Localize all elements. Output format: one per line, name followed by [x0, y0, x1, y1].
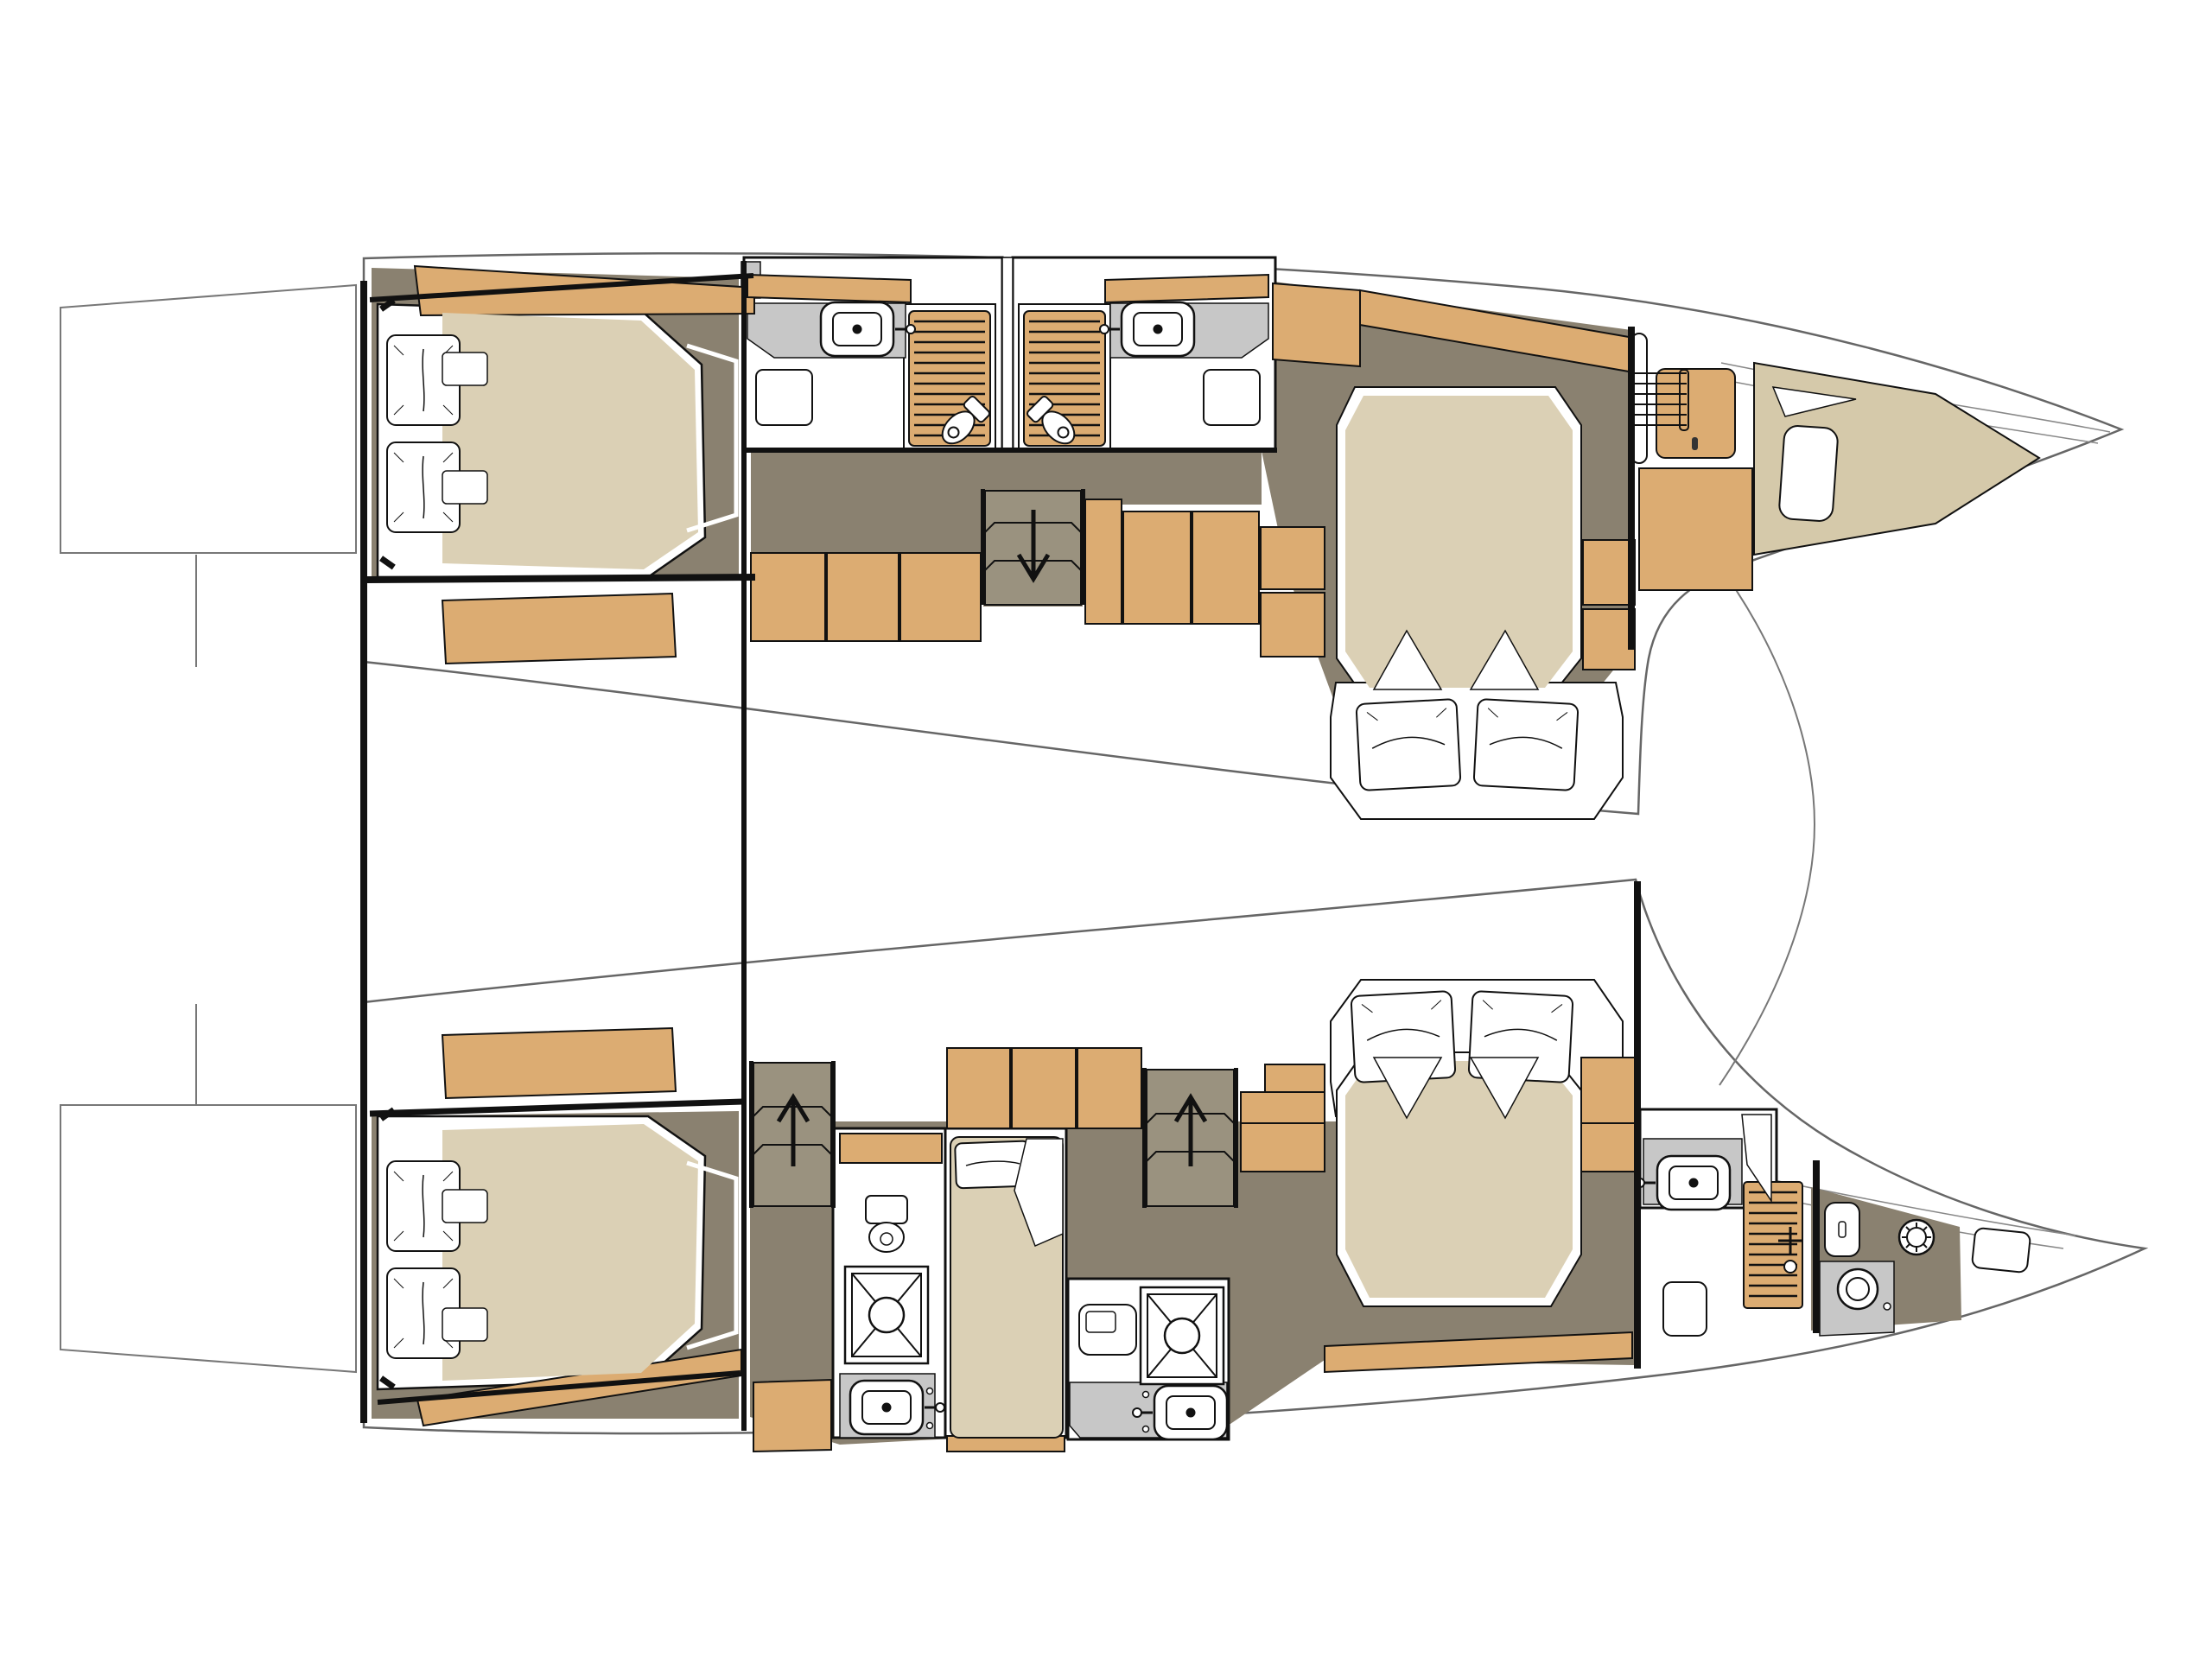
starboard-head-aft-shelf — [840, 1134, 942, 1163]
port-forepeak-seat-slot — [1692, 437, 1698, 450]
catamaran-floor-plan — [0, 0, 2212, 1658]
corridor-cabinet-3 — [900, 553, 981, 641]
swim-platforms — [60, 285, 356, 1372]
pillow-icon — [1356, 699, 1460, 791]
port-forward-bulkhead — [1628, 327, 1635, 650]
port-side-sunpad — [442, 594, 676, 664]
port-transom-platform — [60, 285, 356, 553]
port-forward-cabin-wall-unit — [1273, 283, 1360, 366]
plumbing-fitting — [1143, 1392, 1149, 1398]
deck-hatch-icon — [1778, 425, 1838, 522]
port-stair-wall — [981, 489, 985, 605]
plumbing-fitting — [1143, 1426, 1149, 1432]
windlass-cog-icon — [1899, 1220, 1934, 1255]
starboard-stair-wall — [1142, 1068, 1147, 1208]
corridor-cabinet-2 — [827, 553, 899, 641]
starboard-aft-bed-shelf-notch — [442, 1308, 487, 1341]
corridor-cabinet-1 — [751, 553, 825, 641]
starboard-forward-bed-mattress — [1345, 1061, 1573, 1298]
bow-seat — [1663, 1282, 1707, 1336]
port-heads-divider-wall — [1002, 257, 1013, 451]
shower-tray-icon — [1141, 1287, 1224, 1384]
pillow-icon — [1473, 699, 1578, 791]
sink-icon — [850, 1381, 923, 1434]
starboard-transom-platform — [60, 1105, 356, 1372]
corridor-cabinet-6 — [1192, 511, 1259, 624]
starboard-aft-bed-shelf-notch — [442, 1190, 487, 1223]
port-aft-head-seat — [756, 370, 812, 425]
toilet-bowl-ring-icon — [1838, 1269, 1878, 1309]
port-aft-bed-shelf-notch — [442, 353, 487, 385]
starboard-aft-bed-mattress — [442, 1124, 698, 1381]
bulkhead-mid — [741, 261, 747, 1431]
starboard-side-sunpad — [442, 1028, 676, 1098]
toilet-icon — [866, 1196, 907, 1252]
sink-icon — [1657, 1156, 1730, 1210]
port-forepeak-locker — [1639, 468, 1752, 590]
plumbing-fitting — [927, 1388, 933, 1394]
port-aft-cabin-bottom-rail — [367, 577, 755, 580]
sink-icon — [1122, 302, 1194, 356]
starboard-corridor-cabinet-1 — [947, 1048, 1010, 1128]
port-stair-wall — [1081, 489, 1085, 605]
starboard-forward-cabin-wardrobe-right — [1581, 1058, 1635, 1172]
port-aft-head-shelf — [747, 275, 911, 302]
port-forward-head-seat — [1204, 370, 1260, 425]
corridor-cabinet-4 — [1085, 499, 1122, 624]
port-aft-bed-shelf-notch — [442, 471, 487, 504]
starboard-forward-bulkhead — [1634, 881, 1641, 1369]
port-forward-bed-mattress — [1345, 396, 1573, 688]
deck-hatch-icon — [1972, 1228, 2031, 1273]
starboard-corridor-cabinet-2 — [1012, 1048, 1076, 1128]
port-forward-cabin-wardrobe-left-a — [1261, 527, 1325, 589]
drain-fitting — [1884, 1303, 1891, 1310]
shower-tray-icon — [845, 1267, 928, 1363]
starboard-stair-wall — [831, 1061, 836, 1208]
toilet-flush-slot — [1839, 1222, 1846, 1237]
starboard-corridor-cabinet-3 — [1077, 1048, 1141, 1128]
sink-icon — [1154, 1386, 1227, 1439]
starboard-stair-wall — [1234, 1068, 1238, 1208]
plumbing-fitting — [927, 1423, 933, 1429]
floor-plan-canvas — [0, 0, 2212, 1658]
bridgedeck-nacelle-curve — [1713, 556, 1815, 1085]
starboard-aft-locker — [753, 1380, 831, 1452]
port-forward-cabin-wardrobe-right-b — [1583, 609, 1635, 670]
port-aft-bed-mattress — [442, 313, 698, 569]
sink-icon — [821, 302, 893, 356]
starboard-bow-bulkhead — [1813, 1160, 1820, 1333]
corridor-cabinet-5 — [1123, 511, 1191, 624]
toilet-cistern — [1086, 1312, 1116, 1332]
bulkhead-aft — [360, 281, 367, 1423]
port-forward-head-shelf — [1105, 275, 1268, 302]
port-forward-cabin-wardrobe-right-a — [1583, 540, 1635, 605]
port-forward-cabin-wardrobe-left-b — [1261, 593, 1325, 657]
starboard-stair-wall — [749, 1061, 753, 1208]
